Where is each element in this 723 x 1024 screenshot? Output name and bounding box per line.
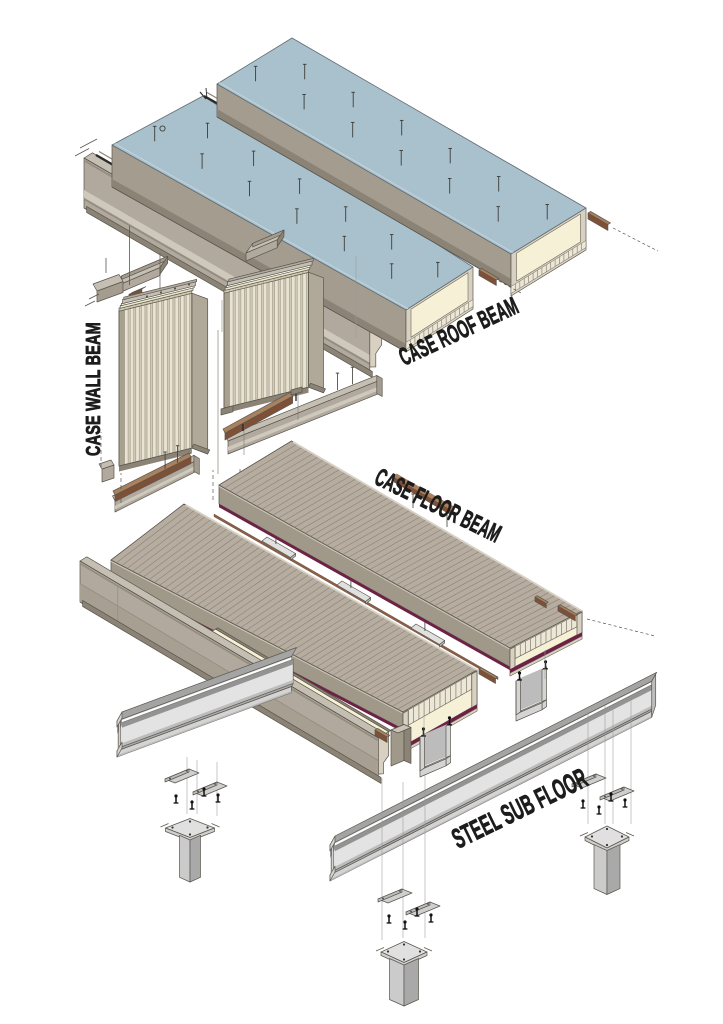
svg-text:CASE WALL BEAM: CASE WALL BEAM <box>82 322 105 456</box>
